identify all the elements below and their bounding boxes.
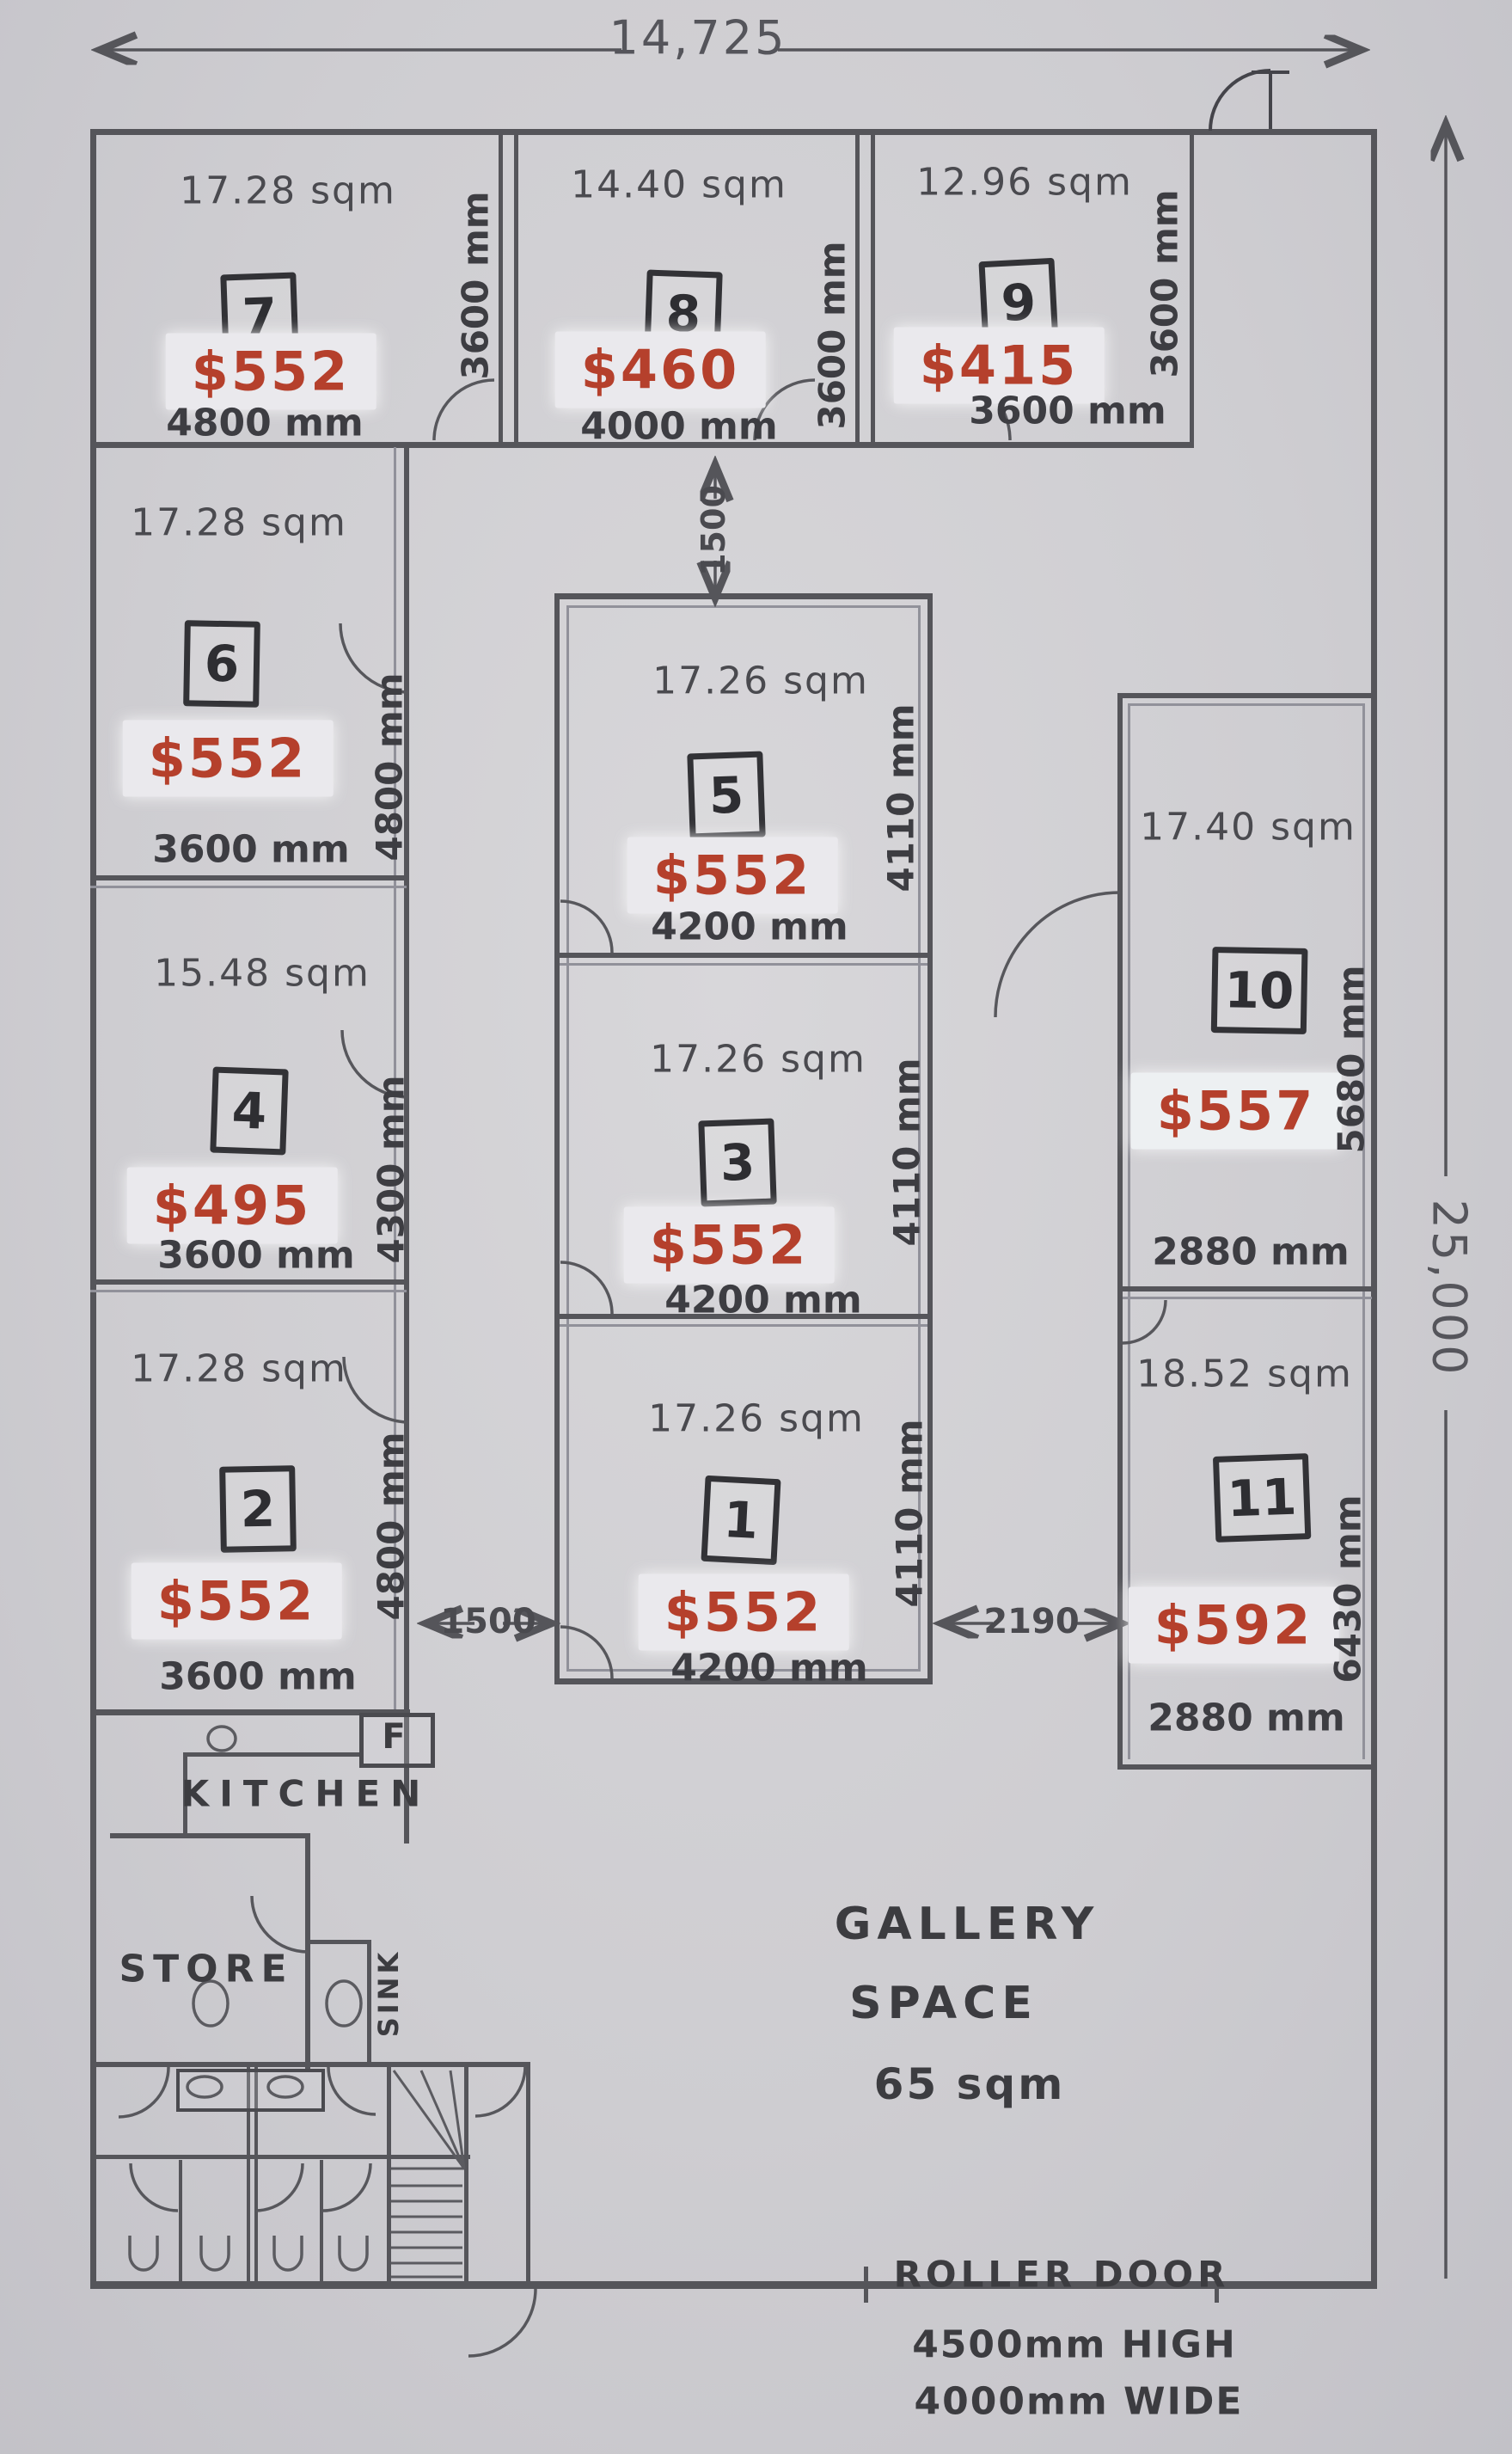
room-7-width: 4800 mm	[166, 402, 363, 445]
roller-door-label: ROLLER DOOR	[894, 2254, 1230, 2296]
room-9-area: 12.96 sqm	[916, 161, 1133, 205]
room-11-depth: 6430 mm	[1327, 1494, 1369, 1683]
store-label: STORE	[119, 1948, 293, 1991]
room-10-price-sticker: $557	[1131, 1073, 1342, 1150]
fridge-label: F	[382, 1717, 405, 1757]
room-10-number: 10	[1211, 947, 1307, 1034]
room-1-width: 4200 mm	[670, 1647, 867, 1690]
room-7-area: 17.28 sqm	[180, 169, 396, 213]
room-7-price: $552	[192, 340, 351, 403]
gallery-label-line2: SPACE	[849, 1978, 1038, 2029]
roller-door-width: 4000mm WIDE	[915, 2380, 1244, 2424]
room-10-area: 17.40 sqm	[1140, 806, 1356, 850]
room-9-depth: 3600 mm	[1144, 189, 1186, 377]
corridor-left-dimension: 1500	[440, 1602, 536, 1641]
room-10-width: 2880 mm	[1152, 1230, 1349, 1274]
room-6-depth: 4800 mm	[369, 672, 411, 861]
room-1-price: $552	[664, 1581, 823, 1644]
room-3-area: 17.26 sqm	[650, 1038, 866, 1082]
room-4-price: $495	[153, 1175, 312, 1237]
room-5-price: $552	[653, 844, 812, 907]
floor-plan-sketch: 14,725 25,000 1500 1500 2190 17.28 sqm 7…	[0, 0, 1512, 2454]
room-3-width: 4200 mm	[664, 1279, 861, 1322]
room-11-price: $592	[1154, 1594, 1313, 1657]
room-2-number: 2	[219, 1465, 297, 1553]
room-1-number: 1	[701, 1475, 780, 1565]
room-3-price: $552	[650, 1214, 809, 1277]
room-5-price-sticker: $552	[627, 837, 838, 914]
roller-door-height: 4500mm HIGH	[912, 2323, 1237, 2367]
room-11-width: 2880 mm	[1148, 1696, 1344, 1740]
overall-width-dimension: 14,725	[609, 11, 787, 65]
corridor-top-dimension: 1500	[695, 485, 732, 576]
entrance-door	[1210, 71, 1289, 131]
room-5-area: 17.26 sqm	[652, 660, 869, 703]
room-7-price-sticker: $552	[166, 334, 376, 410]
room-6-price-sticker: $552	[123, 721, 334, 797]
room-3-price-sticker: $552	[624, 1207, 835, 1284]
room-8-area: 14.40 sqm	[571, 163, 787, 207]
room-9-width: 3600 mm	[969, 390, 1166, 433]
room-5-width: 4200 mm	[651, 905, 848, 949]
kitchen-label: KITCHEN	[181, 1773, 432, 1815]
room-4-price-sticker: $495	[127, 1168, 338, 1244]
room-8-price-sticker: $460	[555, 332, 766, 408]
room-6-price: $552	[149, 727, 308, 790]
room-1-price-sticker: $552	[639, 1574, 849, 1651]
room-8-width: 4000 mm	[580, 405, 777, 449]
room-8-price: $460	[581, 339, 740, 402]
room-10-price: $557	[1157, 1080, 1316, 1143]
gallery-label-line1: GALLERY	[835, 1899, 1100, 1950]
room-2-price-sticker: $552	[132, 1563, 342, 1640]
room-11-number: 11	[1213, 1453, 1311, 1543]
room-1-depth: 4110 mm	[889, 1419, 931, 1607]
room-2-price: $552	[157, 1570, 316, 1633]
room-6-area: 17.28 sqm	[131, 501, 347, 545]
room-8-depth: 3600 mm	[811, 241, 854, 429]
room-3-number: 3	[698, 1118, 776, 1206]
room-2-width: 3600 mm	[159, 1655, 356, 1699]
corridor-right-dimension: 2190	[983, 1602, 1079, 1641]
staircase	[391, 2071, 464, 2277]
sink-label: SINK	[372, 1949, 405, 2038]
room-5-number: 5	[687, 751, 765, 839]
room-11-area: 18.52 sqm	[1136, 1353, 1353, 1396]
room-3-depth: 4110 mm	[886, 1058, 928, 1246]
room-5-depth: 4110 mm	[880, 703, 922, 892]
room-10-depth: 5680 mm	[1331, 965, 1373, 1153]
room-6-number: 6	[183, 620, 260, 708]
overall-height-dimension: 25,000	[1423, 1199, 1477, 1377]
room-9-price: $415	[920, 334, 1079, 397]
room-4-width: 3600 mm	[157, 1234, 354, 1278]
room-4-number: 4	[210, 1066, 288, 1155]
room-1-area: 17.26 sqm	[648, 1397, 865, 1441]
room-2-area: 17.28 sqm	[131, 1347, 347, 1391]
room-4-area: 15.48 sqm	[154, 952, 370, 996]
room-7-depth: 3600 mm	[455, 191, 497, 379]
room-11-price-sticker: $592	[1129, 1587, 1339, 1664]
room-2-depth: 4800 mm	[370, 1432, 413, 1620]
room-4-depth: 4300 mm	[370, 1075, 413, 1263]
gallery-label-line3: 65 sqm	[874, 2059, 1066, 2109]
room-6-width: 3600 mm	[152, 828, 349, 872]
